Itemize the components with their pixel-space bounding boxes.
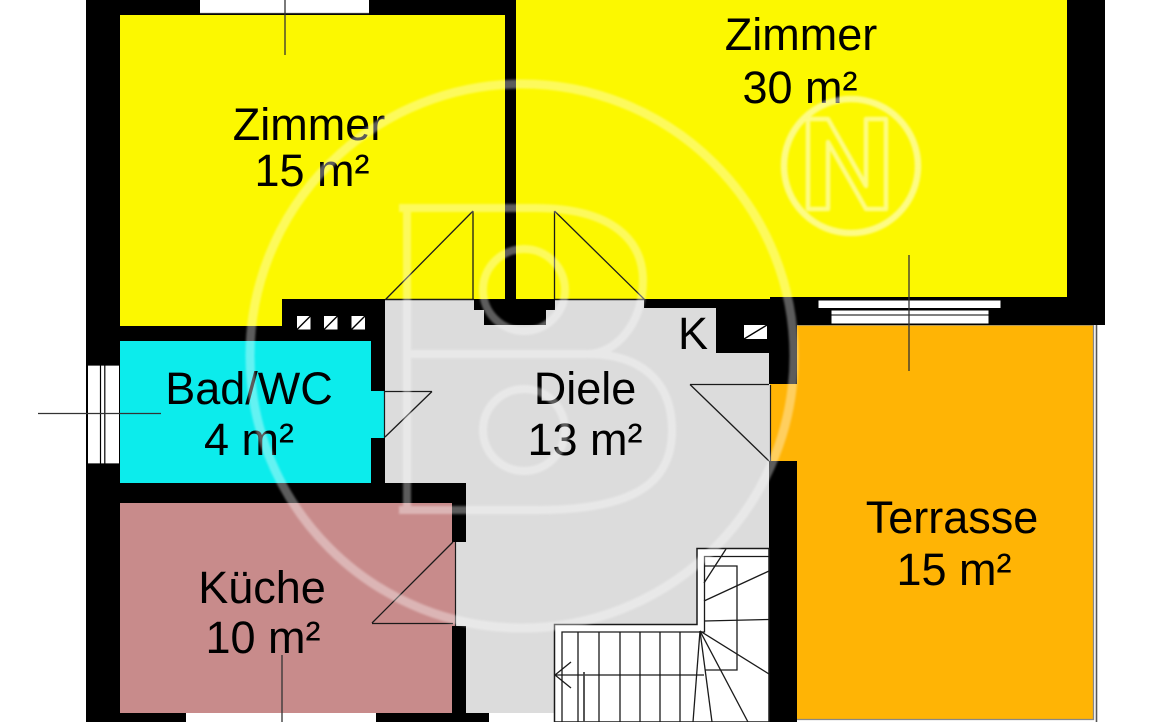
- svg-text:Zimmer: Zimmer: [725, 9, 877, 60]
- svg-text:Zimmer: Zimmer: [233, 99, 385, 150]
- svg-text:15 m²: 15 m²: [896, 544, 1011, 595]
- svg-text:30 m²: 30 m²: [742, 62, 857, 113]
- svg-text:Diele: Diele: [534, 363, 637, 414]
- svg-text:13 m²: 13 m²: [527, 414, 642, 465]
- svg-text:4 m²: 4 m²: [204, 414, 294, 465]
- svg-text:K: K: [678, 308, 708, 359]
- svg-text:Terrasse: Terrasse: [866, 492, 1039, 543]
- svg-text:10 m²: 10 m²: [205, 612, 320, 663]
- svg-text:Küche: Küche: [198, 562, 326, 613]
